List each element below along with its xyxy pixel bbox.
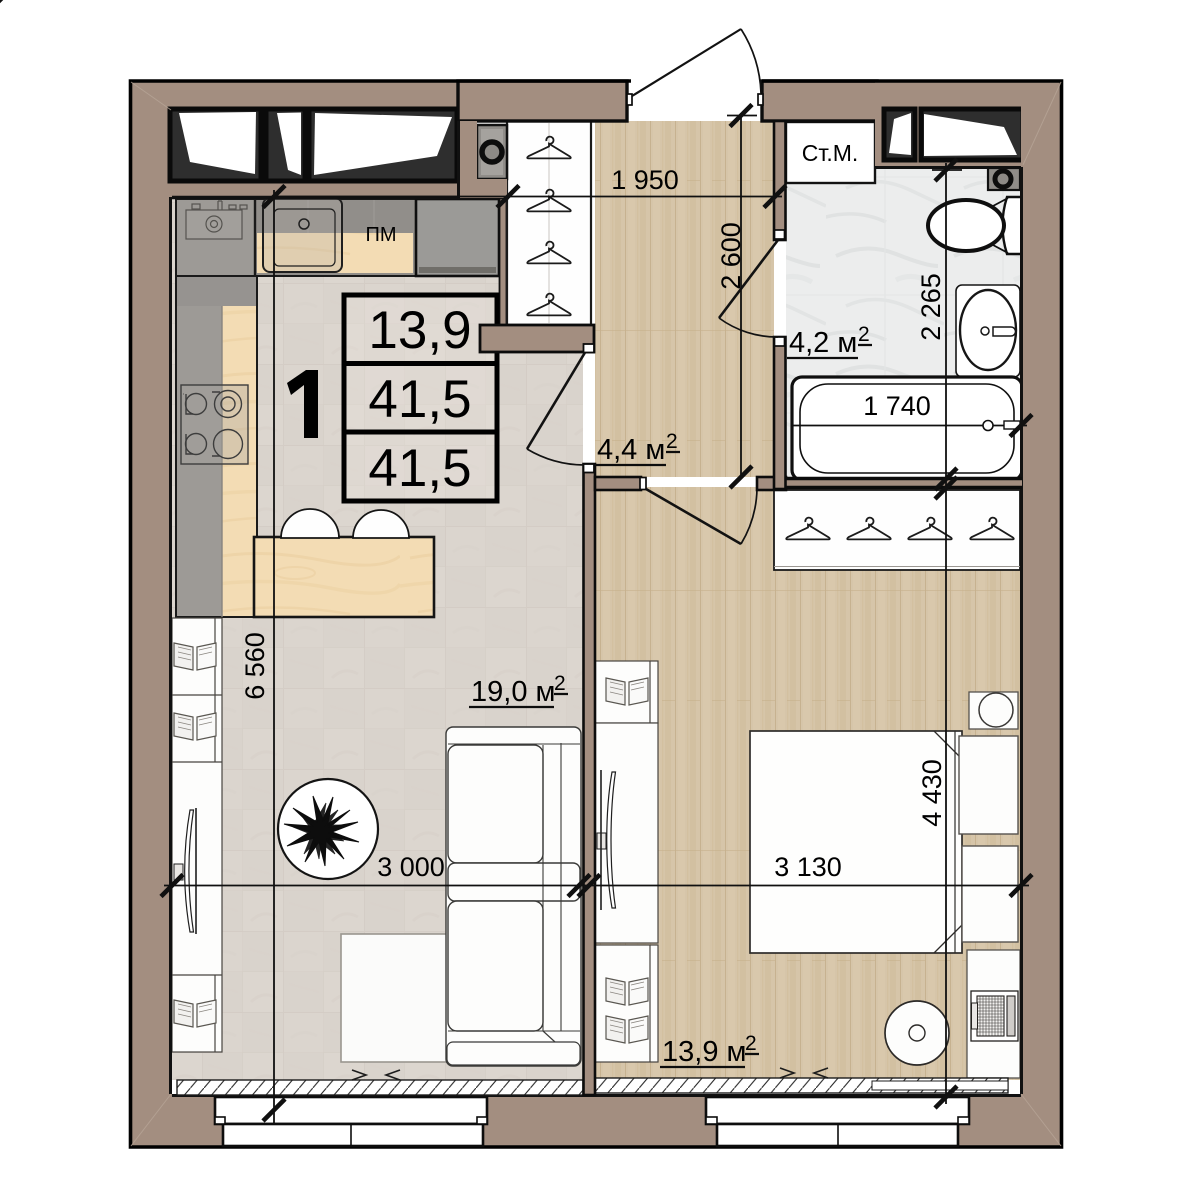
svg-text:41,5: 41,5 [368, 439, 471, 498]
svg-text:4,4 м: 4,4 м [597, 434, 665, 466]
svg-text:2: 2 [666, 430, 678, 453]
svg-text:2 265: 2 265 [916, 273, 946, 341]
svg-text:2: 2 [745, 1032, 757, 1055]
svg-text:2: 2 [554, 672, 566, 695]
svg-text:Ст.М.: Ст.М. [802, 140, 859, 166]
svg-text:ПМ: ПМ [365, 224, 396, 246]
svg-text:6 560: 6 560 [240, 632, 270, 700]
svg-text:3 000: 3 000 [377, 852, 445, 882]
svg-text:2 600: 2 600 [716, 222, 746, 290]
svg-text:41,5: 41,5 [368, 370, 471, 429]
svg-text:4 430: 4 430 [917, 759, 947, 827]
svg-text:4,2 м: 4,2 м [789, 327, 857, 359]
svg-text:2: 2 [858, 323, 870, 346]
svg-text:1 740: 1 740 [863, 391, 931, 421]
svg-text:13,9: 13,9 [368, 301, 471, 360]
svg-text:1 950: 1 950 [611, 165, 679, 195]
svg-text:19,0 м: 19,0 м [471, 676, 555, 708]
svg-text:3 130: 3 130 [774, 852, 842, 882]
svg-text:13,9 м: 13,9 м [662, 1036, 746, 1068]
